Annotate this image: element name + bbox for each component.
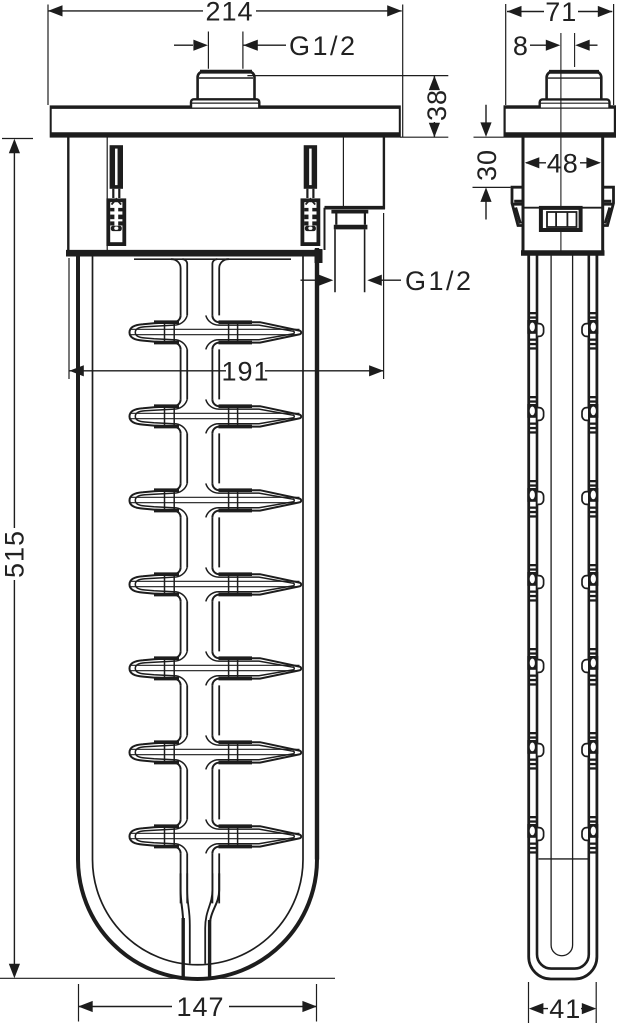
svg-text:147: 147 [176,992,224,1022]
svg-text:G1/2: G1/2 [289,31,358,61]
svg-text:48: 48 [547,148,579,178]
svg-text:8: 8 [513,31,529,61]
svg-text:G1/2: G1/2 [405,266,474,296]
svg-text:30: 30 [472,149,502,181]
svg-text:191: 191 [221,357,269,387]
svg-text:41: 41 [549,994,581,1024]
svg-text:71: 71 [545,0,577,27]
svg-text:38: 38 [422,89,452,121]
svg-text:515: 515 [0,530,30,578]
svg-text:214: 214 [205,0,253,27]
